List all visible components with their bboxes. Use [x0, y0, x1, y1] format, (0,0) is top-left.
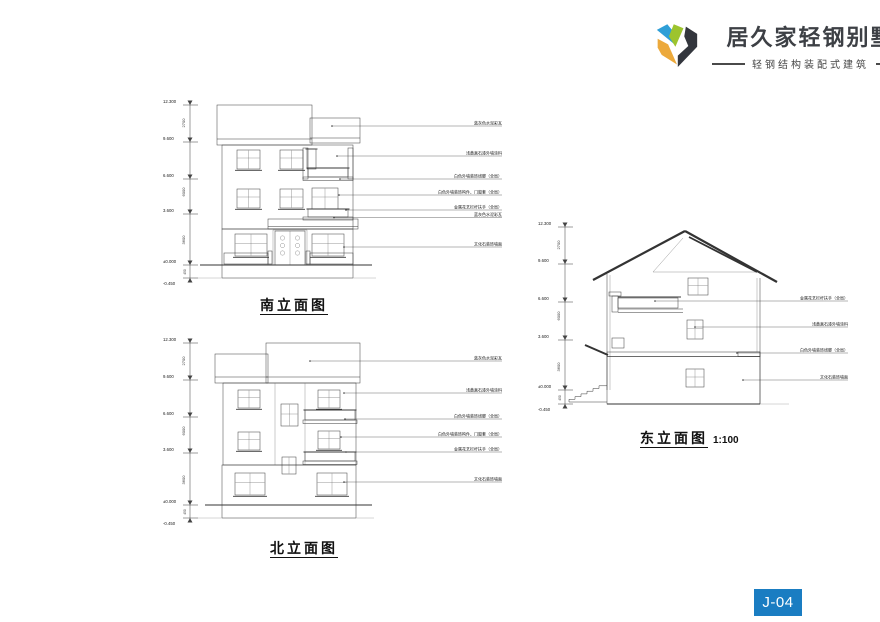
sheet-number: J-04 [762, 594, 793, 611]
callout-label: 金属花艺栏杆扶手（全局） [454, 204, 502, 210]
level-label: 12.300 [163, 337, 177, 342]
dimension-label: 3600 [181, 475, 186, 485]
east-elevation-title: 东立面图1:100 [640, 428, 739, 448]
callout-label: 白色外墙装饰线脚（全局） [454, 413, 502, 419]
south-building [194, 105, 376, 278]
callout-label: 蓝灰色水泥彩瓦 [474, 211, 502, 217]
north-level-column: 12.300 9.600 6.600 3.600 ±0.000 -0.450 2… [163, 337, 198, 526]
tagline-dash-left [712, 63, 745, 65]
level-label: -0.450 [163, 521, 176, 526]
dimension-label: 450 [558, 395, 562, 401]
dimension-label: 450 [183, 509, 187, 515]
dimension-label: 6000 [181, 426, 186, 436]
dimension-label: 2700 [556, 240, 561, 250]
south-level-column: 12.300 9.600 6.600 3.600 ±0.000 -0.450 2… [163, 99, 198, 286]
callout-label: 白色外墙装饰构件、门窗套（全局） [438, 431, 502, 437]
east-level-column: 12.300 9.600 6.600 3.600 ±0.000 -0.450 2… [538, 221, 573, 412]
sheet-number-badge: J-04 [754, 589, 802, 616]
dimension-label: 6000 [556, 311, 561, 321]
brand-name: 居久家轻钢别墅 [726, 20, 880, 52]
north-elevation-title: 北立面图 [270, 538, 338, 558]
callout-label: 浅黄真石漆外墙涂料 [812, 321, 848, 327]
callout-label: 白色外墙装饰线脚（全局） [454, 173, 502, 179]
east-callouts: 金属花艺栏杆扶手（全局） 浅黄真石漆外墙涂料 白色外墙装饰线脚（全局） 文化石装… [654, 295, 848, 381]
dimension-label: 450 [183, 269, 187, 275]
south-elevation-drawing: 12.300 9.600 6.600 3.600 ±0.000 -0.450 2… [160, 92, 510, 317]
level-label: 9.600 [538, 258, 549, 263]
level-label: 6.600 [163, 173, 174, 178]
callout-label: 白色外墙装饰构件、门窗套（全局） [438, 189, 502, 195]
dimension-label: 6000 [181, 187, 186, 197]
callout-label: 金属花艺栏杆扶手（全局） [800, 295, 848, 301]
callout-label: 文化石装饰墙面 [474, 241, 502, 247]
dimension-label: 2700 [181, 118, 186, 128]
brand-tagline: 轻钢结构装配式建筑 [752, 56, 869, 71]
level-label: ±0.000 [538, 384, 552, 389]
callout-label: 蓝灰色水泥彩瓦 [474, 120, 502, 126]
drawing-sheet: 居久家轻钢别墅 轻钢结构装配式建筑 12.300 [0, 0, 880, 622]
level-label: 3.600 [163, 208, 174, 213]
level-label: -0.450 [538, 407, 551, 412]
callout-label: 文化石装饰墙面 [820, 374, 848, 380]
level-label: ±0.000 [163, 499, 177, 504]
level-label: 12.300 [538, 221, 552, 226]
level-label: 6.600 [163, 411, 174, 416]
level-label: 9.600 [163, 136, 174, 141]
callout-label: 白色外墙装饰线脚（全局） [800, 347, 848, 353]
dimension-label: 3600 [181, 235, 186, 245]
south-callouts: 蓝灰色水泥彩瓦 浅黄真石漆外墙涂料 白色外墙装饰线脚（全局） 白色外墙装饰构件、… [331, 120, 502, 248]
callout-label: 文化石装饰墙面 [474, 476, 502, 482]
east-building [569, 231, 789, 404]
callout-label: 金属花艺栏杆扶手（全局） [454, 446, 502, 452]
logo-mark-icon [652, 22, 702, 70]
east-elevation-scale: 1:100 [713, 435, 739, 446]
level-label: 3.600 [163, 447, 174, 452]
level-label: ±0.000 [163, 259, 177, 264]
east-elevation-drawing: 12.300 9.600 6.600 3.600 ±0.000 -0.450 2… [535, 212, 855, 442]
company-logo: 居久家轻钢别墅 轻钢结构装配式建筑 [652, 20, 880, 71]
callout-label: 浅黄真石漆外墙涂料 [466, 150, 502, 156]
north-building [196, 343, 374, 518]
dimension-label: 2700 [181, 356, 186, 366]
tagline-dash-right [876, 63, 880, 65]
level-label: 9.600 [163, 374, 174, 379]
dimension-label: 3600 [556, 362, 561, 372]
north-callouts: 蓝灰色水泥彩瓦 浅黄真石漆外墙涂料 白色外墙装饰线脚（全局） 白色外墙装饰构件、… [309, 355, 502, 483]
logo-green-facet [669, 24, 684, 47]
north-elevation-drawing: 12.300 9.600 6.600 3.600 ±0.000 -0.450 2… [160, 330, 510, 565]
level-label: 12.300 [163, 99, 177, 104]
callout-label: 蓝灰色水泥彩瓦 [474, 355, 502, 361]
level-label: 6.600 [538, 296, 549, 301]
callout-label: 浅黄真石漆外墙涂料 [466, 387, 502, 393]
level-label: 3.600 [538, 334, 549, 339]
level-label: -0.450 [163, 281, 176, 286]
south-elevation-title: 南立面图 [260, 295, 328, 315]
